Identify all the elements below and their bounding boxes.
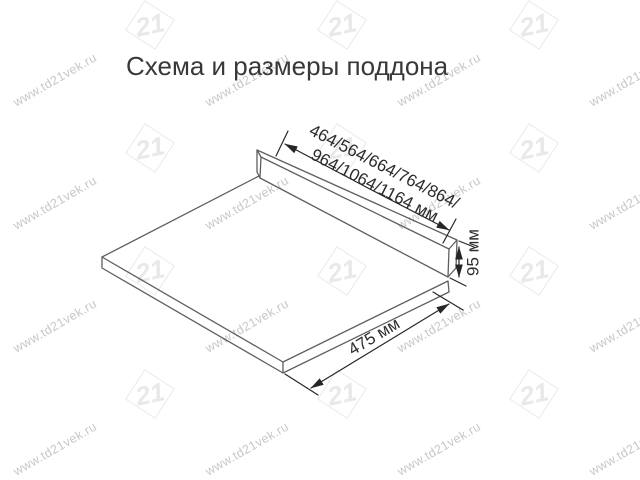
height-dimension-label: 95 мм [463, 220, 484, 286]
page-title: Схема и размеры поддона [126, 51, 448, 82]
product-schematic-image: www.td21vek.ru21www.td21vek.ru21www.td21… [0, 0, 640, 480]
